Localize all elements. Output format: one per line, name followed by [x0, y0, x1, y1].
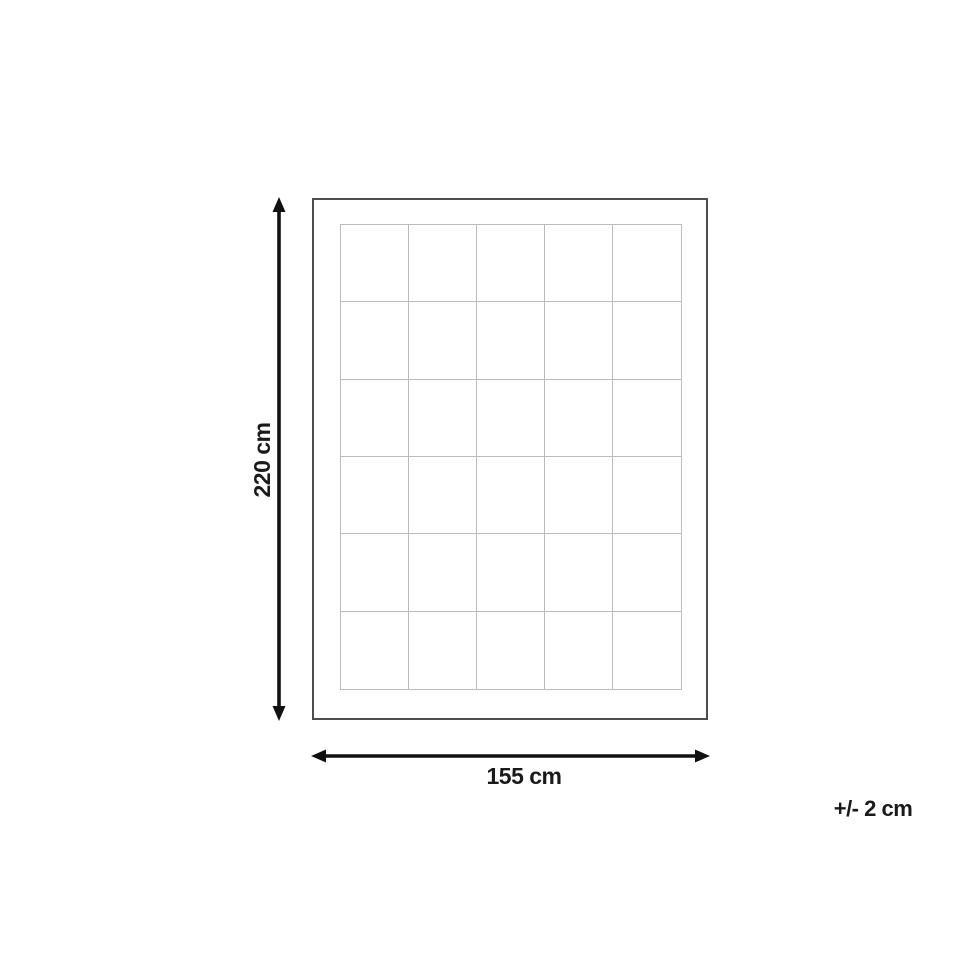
- grid-cell: [477, 612, 545, 689]
- grid-cell: [409, 457, 477, 534]
- grid-cell: [613, 225, 681, 302]
- grid-cell: [409, 302, 477, 379]
- grid-cell: [613, 457, 681, 534]
- width-dimension-label: 155 cm: [454, 763, 594, 789]
- dimension-diagram: 220 cm 155 cm +/- 2 cm: [0, 0, 960, 960]
- grid-cell: [341, 534, 409, 611]
- grid-cell: [341, 380, 409, 457]
- grid-cell: [545, 612, 613, 689]
- grid-cell: [545, 457, 613, 534]
- grid-cell: [613, 380, 681, 457]
- height-dimension-label: 220 cm: [249, 420, 275, 500]
- arrow-left-icon: [311, 750, 326, 763]
- grid-cell: [477, 225, 545, 302]
- grid-cell: [613, 534, 681, 611]
- grid-cell: [545, 380, 613, 457]
- horizontal-dimension-arrow: [311, 750, 710, 763]
- grid-cell: [613, 612, 681, 689]
- grid-cell: [477, 534, 545, 611]
- grid-cell: [409, 612, 477, 689]
- grid-cell: [477, 457, 545, 534]
- grid-cell: [341, 612, 409, 689]
- grid-cell: [341, 225, 409, 302]
- grid-cell: [545, 534, 613, 611]
- tolerance-label: +/- 2 cm: [803, 796, 943, 822]
- arrow-right-icon: [695, 750, 710, 763]
- blanket-grid: [340, 224, 682, 690]
- grid-cell: [477, 380, 545, 457]
- grid-cell: [613, 302, 681, 379]
- grid-cell: [409, 534, 477, 611]
- grid-cell: [545, 302, 613, 379]
- grid-cell: [409, 225, 477, 302]
- arrow-up-icon: [273, 197, 286, 212]
- grid-cell: [545, 225, 613, 302]
- grid-cell: [409, 380, 477, 457]
- grid-cell: [477, 302, 545, 379]
- grid-cell: [341, 457, 409, 534]
- arrow-down-icon: [273, 706, 286, 721]
- grid-cell: [341, 302, 409, 379]
